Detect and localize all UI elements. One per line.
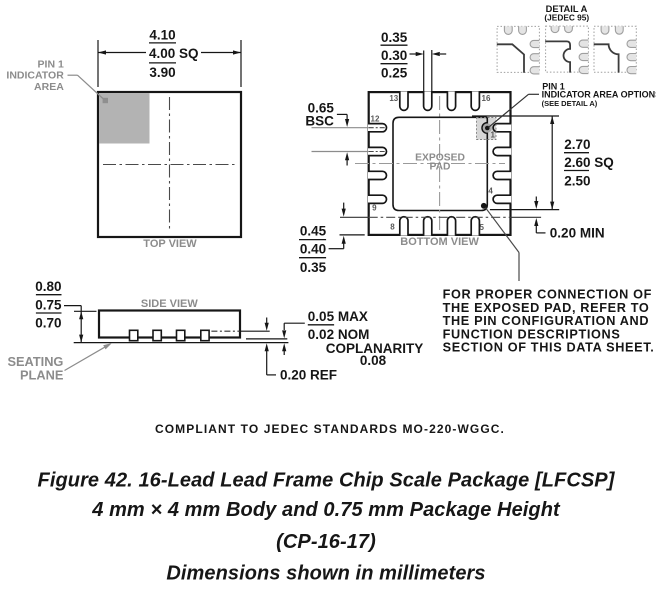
svg-text:THE PIN CONFIGURATION AND: THE PIN CONFIGURATION AND (443, 314, 650, 328)
svg-text:PAD: PAD (430, 161, 451, 172)
svg-text:4.00 SQ: 4.00 SQ (149, 46, 199, 61)
svg-text:0.25: 0.25 (381, 66, 408, 81)
svg-text:BOTTOM VIEW: BOTTOM VIEW (400, 236, 479, 248)
svg-text:2.50: 2.50 (564, 173, 590, 188)
svg-text:12: 12 (371, 115, 380, 124)
svg-text:0.30: 0.30 (381, 48, 407, 63)
svg-text:4: 4 (488, 187, 493, 196)
svg-text:INDICATOR AREA OPTIONS: INDICATOR AREA OPTIONS (542, 90, 656, 100)
svg-text:SECTION OF THIS DATA SHEET.: SECTION OF THIS DATA SHEET. (443, 341, 655, 355)
svg-text:4 mm × 4 mm Body and 0.75 mm P: 4 mm × 4 mm Body and 0.75 mm Package Hei… (91, 499, 561, 521)
svg-text:8: 8 (390, 222, 395, 231)
svg-text:(CP-16-17): (CP-16-17) (276, 531, 376, 553)
svg-text:FOR PROPER CONNECTION OF: FOR PROPER CONNECTION OF (443, 288, 652, 302)
svg-text:13: 13 (389, 94, 398, 103)
svg-text:FUNCTION DESCRIPTIONS: FUNCTION DESCRIPTIONS (443, 327, 621, 341)
svg-text:0.40: 0.40 (300, 242, 326, 257)
svg-text:4.10: 4.10 (149, 27, 175, 42)
svg-text:16: 16 (482, 94, 491, 103)
svg-text:Figure 42. 16-Lead Lead Frame: Figure 42. 16-Lead Lead Frame Chip Scale… (38, 470, 616, 492)
svg-text:0.80: 0.80 (35, 279, 61, 294)
svg-text:2.70: 2.70 (564, 137, 590, 152)
svg-text:0.35: 0.35 (300, 260, 327, 275)
svg-text:2.60 SQ: 2.60 SQ (564, 155, 614, 170)
svg-text:5: 5 (479, 223, 484, 232)
svg-text:(SEE DETAIL A): (SEE DETAIL A) (542, 99, 598, 108)
svg-text:INDICATOR: INDICATOR (6, 70, 64, 82)
svg-text:0.70: 0.70 (35, 316, 61, 331)
svg-text:9: 9 (372, 204, 377, 213)
svg-text:TOP VIEW: TOP VIEW (143, 238, 197, 250)
svg-text:COMPLIANT TO JEDEC STANDARDS M: COMPLIANT TO JEDEC STANDARDS MO-220-WGGC… (155, 422, 505, 436)
svg-text:PLANE: PLANE (20, 368, 64, 383)
svg-text:0.35: 0.35 (381, 30, 408, 45)
svg-text:3.90: 3.90 (149, 65, 175, 80)
svg-text:0.20 MIN: 0.20 MIN (550, 226, 605, 241)
svg-text:0.45: 0.45 (300, 223, 327, 238)
svg-text:AREA: AREA (34, 81, 64, 93)
svg-text:1: 1 (490, 131, 495, 140)
svg-text:Dimensions shown in millimeter: Dimensions shown in millimeters (166, 563, 485, 585)
svg-text:PIN 1: PIN 1 (38, 58, 64, 70)
svg-text:0.20 REF: 0.20 REF (280, 368, 337, 383)
svg-text:SIDE VIEW: SIDE VIEW (141, 298, 198, 310)
svg-text:THE EXPOSED PAD, REFER TO: THE EXPOSED PAD, REFER TO (443, 301, 650, 315)
svg-text:0.75: 0.75 (35, 298, 62, 313)
svg-text:(JEDEC 95): (JEDEC 95) (544, 13, 589, 23)
svg-text:0.02 NOM: 0.02 NOM (308, 327, 370, 342)
svg-text:0.05 MAX: 0.05 MAX (308, 309, 368, 324)
svg-text:BSC: BSC (305, 114, 334, 129)
svg-text:0.08: 0.08 (360, 353, 387, 368)
